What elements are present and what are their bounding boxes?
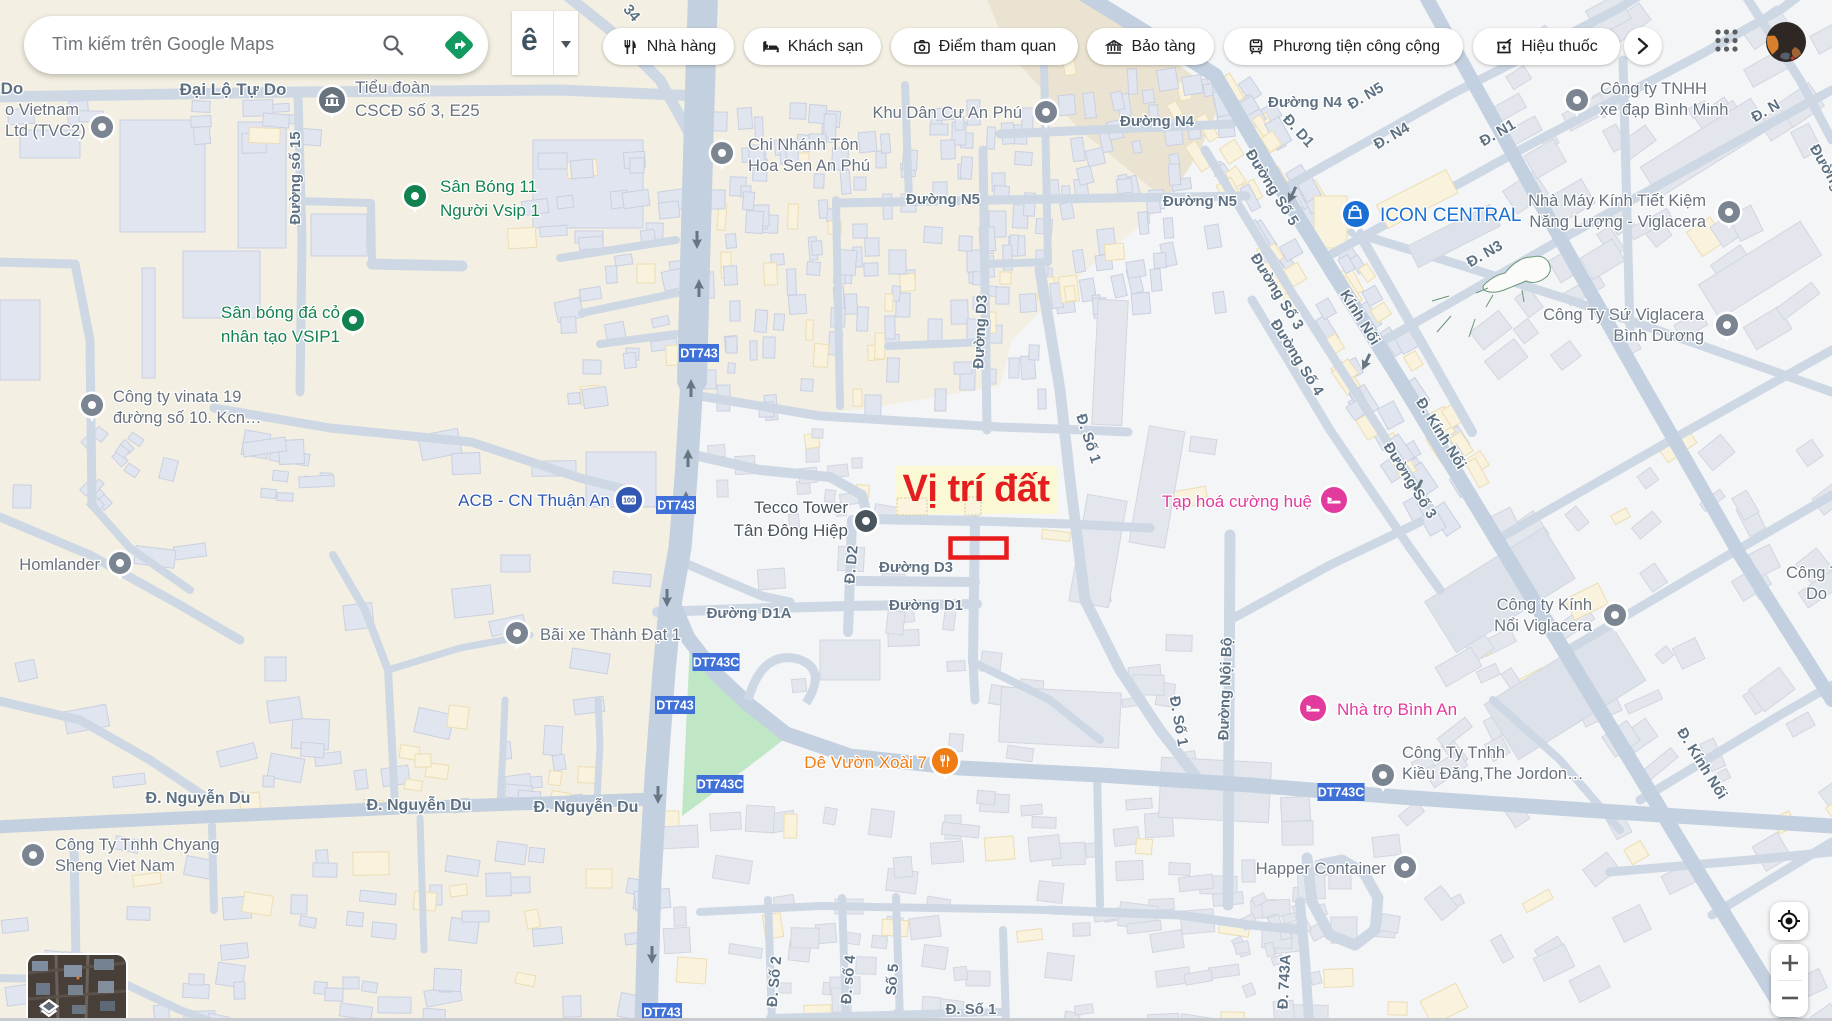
- svg-text:Đ. Nguyễn Du: Đ. Nguyễn Du: [146, 788, 251, 807]
- svg-text:Bình Dương: Bình Dương: [1613, 327, 1704, 345]
- svg-text:Đ. Nguyễn Du: Đ. Nguyễn Du: [367, 795, 472, 814]
- svg-text:Khu Dân Cư An Phú: Khu Dân Cư An Phú: [872, 104, 1022, 122]
- svg-text:Đường N4: Đường N4: [1268, 94, 1343, 111]
- svg-text:Đại Lộ Tự Do: Đại Lộ Tự Do: [180, 80, 287, 99]
- svg-text:DT743C: DT743C: [697, 778, 744, 792]
- svg-text:ICON CENTRAL: ICON CENTRAL: [1380, 205, 1521, 226]
- svg-text:Đường N5: Đường N5: [1163, 193, 1237, 210]
- svg-text:nhân tạo VSIP1: nhân tạo VSIP1: [221, 327, 340, 346]
- svg-text:Số 5: Số 5: [883, 963, 903, 996]
- svg-text:Đ. Số 1: Đ. Số 1: [946, 1001, 997, 1018]
- svg-text:Vị trí đất: Vị trí đất: [902, 468, 1050, 510]
- svg-text:Đ. Nguyễn Du: Đ. Nguyễn Du: [534, 797, 639, 816]
- svg-text:Công Ty Sứ Viglacera: Công Ty Sứ Viglacera: [1543, 306, 1705, 324]
- svg-text:DT743C: DT743C: [693, 656, 740, 670]
- svg-text:Đường D1A: Đường D1A: [707, 605, 792, 622]
- svg-text:Kiều Đăng,The Jordon…: Kiều Đăng,The Jordon…: [1402, 765, 1584, 783]
- svg-text:đường số 10. Kcn…: đường số 10. Kcn…: [113, 409, 261, 427]
- svg-text:Đường D3: Đường D3: [879, 559, 953, 576]
- svg-text:Sân bóng đá cỏ: Sân bóng đá cỏ: [221, 303, 340, 322]
- svg-text:Bãi xe Thành Đạt 1: Bãi xe Thành Đạt 1: [540, 626, 681, 644]
- svg-text:Ltd (TVC2): Ltd (TVC2): [5, 122, 86, 140]
- svg-text:M: M: [1112, 40, 1116, 46]
- svg-text:DT743: DT743: [656, 699, 694, 713]
- svg-text:DT743C: DT743C: [1318, 786, 1365, 800]
- svg-text:ACB - CN Thuận An: ACB - CN Thuận An: [458, 491, 610, 510]
- svg-text:Công ty TNHH: Công ty TNHH: [1600, 80, 1707, 98]
- svg-text:Công ty vinata 19: Công ty vinata 19: [113, 388, 241, 406]
- svg-text:Nhà Máy Kính Tiết Kiệm: Nhà Máy Kính Tiết Kiệm: [1528, 192, 1706, 210]
- svg-text:DT743: DT743: [657, 499, 695, 513]
- svg-text:Dê Vườn Xoài 7: Dê Vườn Xoài 7: [804, 753, 927, 772]
- svg-text:Công T: Công T: [1786, 564, 1832, 582]
- svg-text:Người Vsip 1: Người Vsip 1: [440, 201, 540, 220]
- svg-text:Sân Bóng 11: Sân Bóng 11: [440, 177, 537, 196]
- svg-text:Tạp hoá cường huệ: Tạp hoá cường huệ: [1162, 492, 1312, 511]
- svg-text:CSCĐ số 3, E25: CSCĐ số 3, E25: [355, 101, 480, 120]
- svg-text:Công Ty Tnhh Chyang: Công Ty Tnhh Chyang: [55, 836, 220, 854]
- svg-text:Nhà trọ Bình An: Nhà trọ Bình An: [1337, 700, 1457, 719]
- svg-text:Do: Do: [1, 79, 24, 98]
- svg-text:Homlander: Homlander: [19, 556, 100, 574]
- svg-text:Đ. D2: Đ. D2: [841, 545, 861, 585]
- svg-text:Công Ty Tnhh: Công Ty Tnhh: [1402, 744, 1505, 762]
- svg-text:Đường N5: Đường N5: [906, 191, 980, 208]
- svg-text:Nổi Viglacera: Nổi Viglacera: [1494, 617, 1593, 635]
- svg-text:Tiểu đoàn: Tiểu đoàn: [355, 78, 430, 97]
- svg-text:Hoa Sen An Phú: Hoa Sen An Phú: [748, 157, 870, 175]
- svg-text:Công ty Kính: Công ty Kính: [1497, 596, 1592, 614]
- svg-text:Đ. 743A: Đ. 743A: [1275, 954, 1295, 1010]
- svg-text:o Vietnam: o Vietnam: [5, 101, 79, 119]
- svg-text:Happer Container: Happer Container: [1256, 860, 1387, 878]
- svg-text:Tân Đông Hiệp: Tân Đông Hiệp: [734, 521, 848, 540]
- svg-text:xe đạp Bình Minh: xe đạp Bình Minh: [1600, 101, 1728, 119]
- svg-text:Sheng Viet Nam: Sheng Viet Nam: [55, 857, 175, 875]
- svg-text:Đường số 15: Đường số 15: [287, 131, 304, 224]
- svg-text:Đường Nội Bộ: Đường Nội Bộ: [1215, 637, 1236, 741]
- svg-text:Chi Nhánh Tôn: Chi Nhánh Tôn: [748, 136, 859, 154]
- svg-text:Đường D1: Đường D1: [889, 597, 963, 614]
- svg-text:Đường N4: Đường N4: [1120, 113, 1195, 130]
- svg-text:DT743: DT743: [680, 347, 718, 361]
- svg-text:Năng Lượng - Viglacera: Năng Lượng - Viglacera: [1529, 213, 1706, 231]
- svg-text:Tecco Tower: Tecco Tower: [754, 498, 849, 517]
- svg-text:100: 100: [623, 498, 635, 505]
- svg-text:Do: Do: [1806, 585, 1827, 603]
